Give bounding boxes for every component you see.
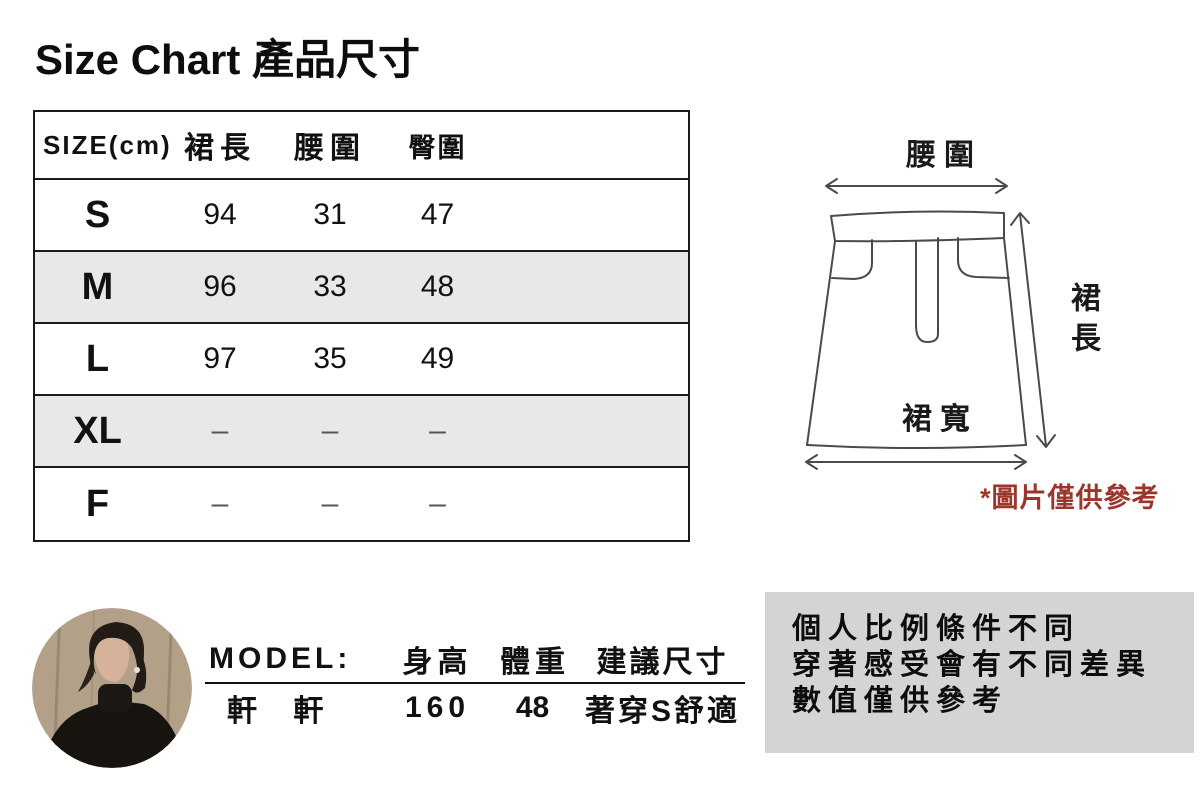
- table-row-xl: XL – – –: [35, 396, 688, 468]
- value-hip: –: [380, 414, 495, 448]
- suggestion-header: 建議尺寸: [580, 637, 745, 681]
- waistband-outline: [831, 212, 1004, 242]
- table-row-l: L 97 35 49: [35, 324, 688, 396]
- column-header-hip: 臀圍: [380, 126, 495, 165]
- width-label: 裙寬: [868, 394, 1004, 438]
- model-info-header-row: MODEL: 身高 體重 建議尺寸: [205, 636, 745, 684]
- value-skirt-length: –: [160, 414, 280, 448]
- table-row-m: M 96 33 48: [35, 252, 688, 324]
- height-header: 身高: [385, 637, 485, 681]
- value-skirt-length: 94: [160, 198, 280, 232]
- column-header-skirt-length: 裙長: [160, 123, 280, 167]
- size-label: XL: [35, 410, 160, 453]
- size-chart-page: Size Chart 產品尺寸 SIZE(cm) 裙長 腰圍 臀圍 S 94 3…: [0, 0, 1200, 800]
- size-label: F: [35, 483, 160, 526]
- model-name: 軒 軒: [205, 686, 385, 730]
- value-hip: 48: [380, 270, 495, 304]
- size-table-header-row: SIZE(cm) 裙長 腰圍 臀圍: [35, 112, 688, 180]
- right-pocket-line: [958, 238, 1009, 278]
- value-waist: 31: [280, 198, 380, 232]
- reference-note: *圖片僅供參考: [980, 476, 1160, 515]
- table-row-f: F – – –: [35, 468, 688, 540]
- value-waist: 35: [280, 342, 380, 376]
- disclaimer-line-2: 穿著感受會有不同差異: [792, 647, 1194, 683]
- value-skirt-length: 96: [160, 270, 280, 304]
- fly-line: [916, 238, 938, 342]
- size-table: SIZE(cm) 裙長 腰圍 臀圍 S 94 31 47 M 96 33 48 …: [33, 110, 690, 542]
- model-suggestion: 著穿S舒適: [580, 686, 745, 730]
- value-skirt-length: –: [160, 487, 280, 521]
- disclaimer-line-3: 數值僅供參考: [792, 683, 1194, 719]
- model-photo-illustration: [32, 608, 192, 768]
- left-pocket-line: [832, 240, 872, 279]
- model-weight: 48: [485, 691, 580, 725]
- weight-header: 體重: [485, 637, 580, 681]
- value-waist: 33: [280, 270, 380, 304]
- disclaimer-box: 個人比例條件不同 穿著感受會有不同差異 數值僅供參考: [765, 592, 1194, 753]
- skirt-diagram: [790, 120, 1170, 520]
- model-label: MODEL:: [205, 642, 385, 676]
- table-row-s: S 94 31 47: [35, 180, 688, 252]
- model-info-value-row: 軒 軒 160 48 著穿S舒適: [205, 684, 745, 732]
- value-waist: –: [280, 414, 380, 448]
- length-arrow: [1020, 214, 1046, 446]
- size-label: S: [35, 194, 160, 237]
- model-avatar: [32, 608, 192, 768]
- value-hip: –: [380, 487, 495, 521]
- length-label: 裙長: [1060, 282, 1104, 362]
- size-label: M: [35, 266, 160, 309]
- value-waist: –: [280, 487, 380, 521]
- page-title: Size Chart 產品尺寸: [35, 26, 420, 87]
- size-unit-header: SIZE(cm): [35, 130, 160, 161]
- value-hip: 47: [380, 198, 495, 232]
- size-label: L: [35, 338, 160, 381]
- disclaimer-line-1: 個人比例條件不同: [792, 611, 1194, 647]
- value-hip: 49: [380, 342, 495, 376]
- column-header-waist: 腰圍: [280, 123, 380, 167]
- model-info: MODEL: 身高 體重 建議尺寸 軒 軒 160 48 著穿S舒適: [205, 636, 745, 732]
- model-height: 160: [385, 691, 485, 725]
- waist-label: 腰圍: [870, 130, 1010, 174]
- value-skirt-length: 97: [160, 342, 280, 376]
